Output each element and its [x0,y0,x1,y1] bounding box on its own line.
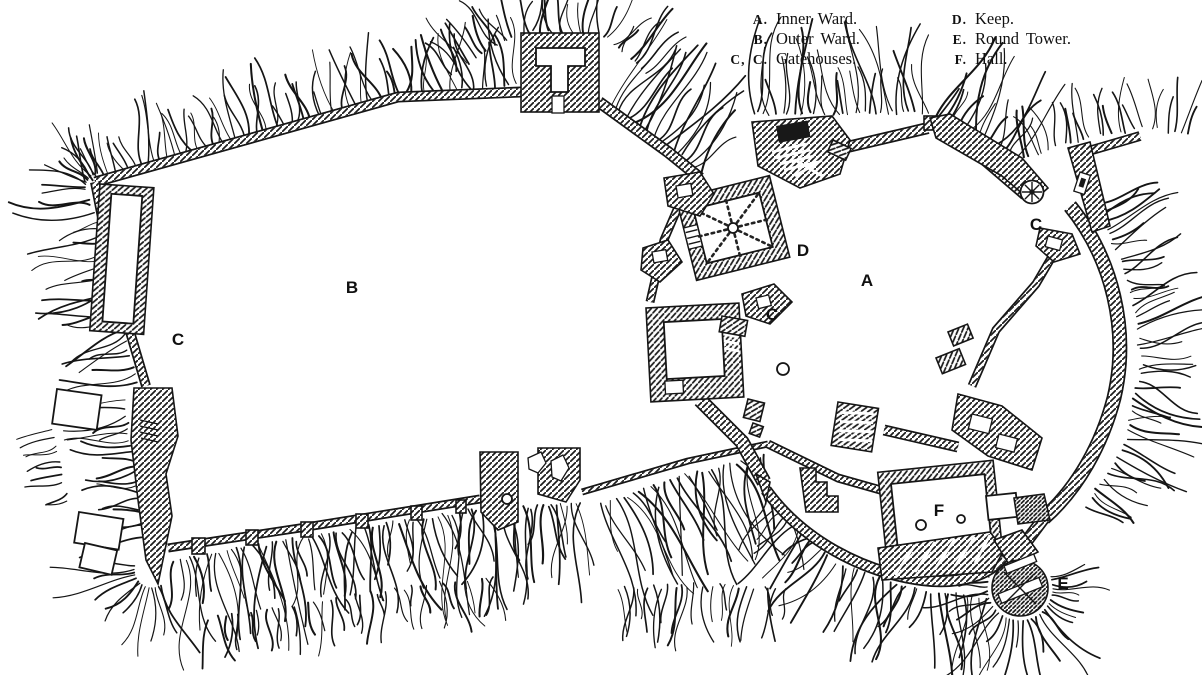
south-gatehouse [480,448,580,530]
plan-circle-hall-pillar-left [916,520,926,530]
legend-column-right: D. Keep. E. Round Tower. F. Hall. [941,9,1071,69]
legend-key: B. [710,32,768,48]
legend-item-keep: D. Keep. [941,9,1071,29]
plan-label-f-hall: F [934,501,944,520]
plan-circle-courtyard-well [777,363,789,375]
legend-label: Keep. [975,9,1014,29]
plan-circle-keep-center [728,223,738,233]
plan-label-a-inner-ward: A [861,271,873,290]
keep [641,172,792,324]
legend-item-inner-ward: A. Inner Ward. [710,9,860,29]
legend-key: E. [941,32,967,48]
plan-label-b-outer-ward: B [346,278,358,297]
northeast-spur-wall [1092,136,1140,150]
plan-circle-hall-pillar-right [957,515,965,523]
legend-item-round-tower: E. Round Tower. [941,29,1071,49]
castle-plan-drawing: BCCDACFE [0,0,1202,675]
engraved-castle-plan: BCCDACFE A. Inner Ward. B. Outer Ward. C… [0,0,1202,675]
legend-item-hall: F. Hall. [941,49,1071,69]
west-range-building [90,184,154,334]
legend-item-outer-ward: B. Outer Ward. [710,29,860,49]
plan-label-c-northeast-gatehouse: C [1030,215,1042,234]
plan-label-d-keep: D [797,241,809,260]
plan-label-c-middle-gatehouse: C [766,305,778,324]
legend-key: C, C. [710,52,768,68]
legend-label: Gatehouses. [776,49,856,69]
buildings-and-towers [52,33,1110,616]
legend-label: Round Tower. [975,29,1071,49]
legend-item-gatehouses: C, C. Gatehouses. [710,49,860,69]
round-tower [992,530,1048,616]
stair-block [800,402,878,512]
northeast-curtain-wall-outer-ward [599,102,700,178]
north-gate-tower [521,33,599,113]
hall-north-bar-wall [884,430,958,447]
legend-label: Hall. [975,49,1008,69]
legend-key: D. [941,12,967,28]
legend-label: Inner Ward. [776,9,857,29]
legend-label: Outer Ward. [776,29,860,49]
plan-label-c-west-gatehouse: C [172,330,184,349]
plan-label-e-round-tower: E [1057,574,1068,593]
legend-key: A. [710,12,768,28]
legend-key: F. [941,52,967,68]
legend-column-left: A. Inner Ward. B. Outer Ward. C, C. Gate… [710,9,860,69]
